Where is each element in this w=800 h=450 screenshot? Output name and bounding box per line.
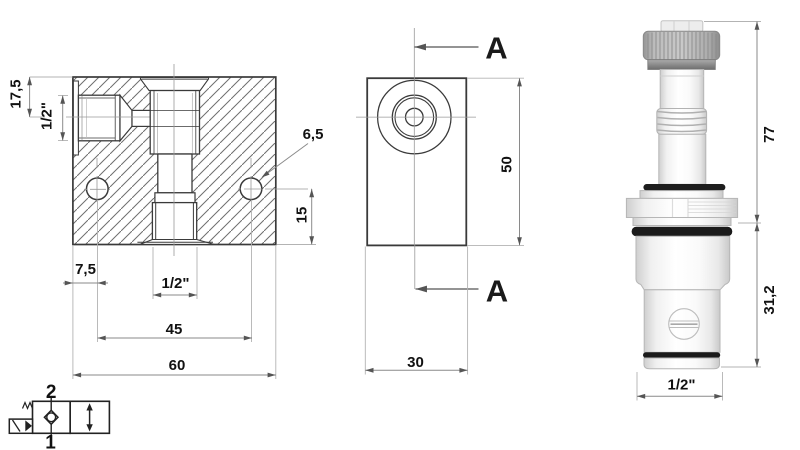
svg-text:60: 60 bbox=[169, 357, 186, 374]
svg-text:30: 30 bbox=[407, 354, 424, 371]
svg-text:1/2": 1/2" bbox=[668, 377, 696, 394]
svg-text:A: A bbox=[485, 31, 507, 66]
svg-text:15: 15 bbox=[294, 207, 311, 224]
svg-text:45: 45 bbox=[166, 321, 183, 338]
svg-text:A: A bbox=[486, 274, 508, 309]
svg-text:2: 2 bbox=[46, 382, 57, 403]
svg-text:1: 1 bbox=[45, 433, 56, 450]
svg-text:31,2: 31,2 bbox=[761, 285, 778, 314]
svg-text:1/2": 1/2" bbox=[162, 275, 190, 292]
svg-text:1/2": 1/2" bbox=[39, 102, 56, 130]
svg-text:50: 50 bbox=[499, 156, 516, 173]
svg-text:77: 77 bbox=[761, 126, 778, 143]
svg-text:6,5: 6,5 bbox=[303, 126, 324, 143]
svg-text:17,5: 17,5 bbox=[8, 79, 25, 108]
svg-text:7,5: 7,5 bbox=[75, 261, 96, 278]
